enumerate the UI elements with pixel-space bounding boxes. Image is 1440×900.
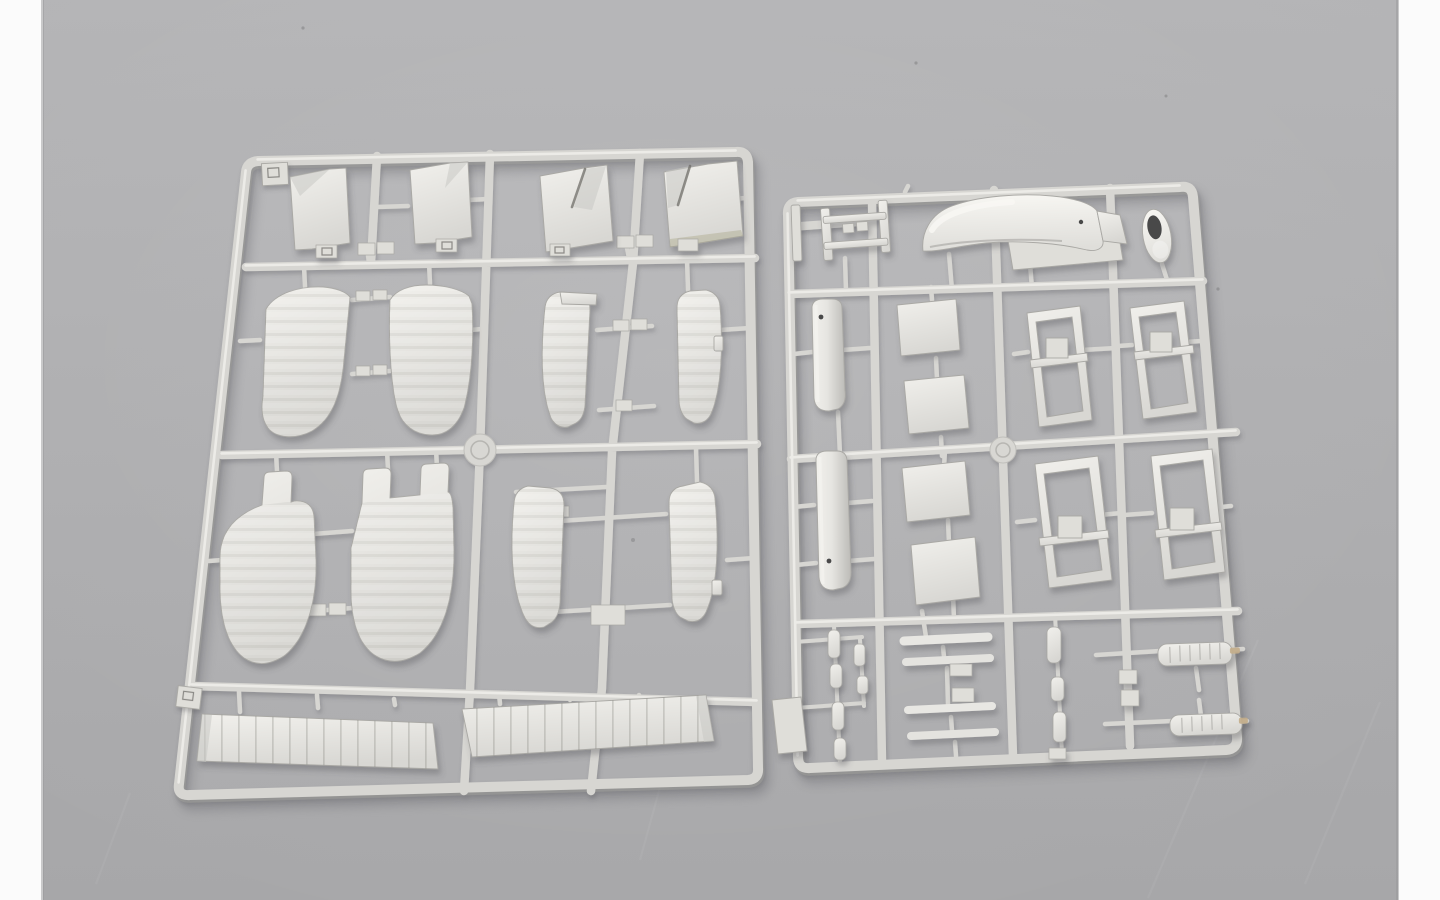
part-lower-wing-slat-1 bbox=[197, 714, 438, 769]
part-fuselage-half-1 bbox=[812, 299, 845, 411]
kit-sprues-photo: Two light-grey injection-moulded plastic… bbox=[0, 0, 1440, 900]
part-deck-panel-1 bbox=[897, 299, 960, 356]
part-notched-panel-1 bbox=[540, 165, 613, 256]
left-sprue bbox=[176, 150, 764, 805]
dust-speck bbox=[914, 61, 917, 64]
part-wing-panel-3 bbox=[512, 486, 564, 628]
part-thin-strip bbox=[791, 205, 802, 261]
right-sprue bbox=[772, 185, 1248, 778]
part-notched-panel-2 bbox=[664, 161, 743, 251]
dust-speck bbox=[1165, 95, 1168, 98]
sprue-photo-svg bbox=[0, 0, 1440, 900]
part-wing-tip-2 bbox=[389, 285, 472, 435]
part-deck-panel-4 bbox=[911, 537, 980, 605]
part-deck-panel-3 bbox=[902, 461, 970, 522]
part-deck-panel-2 bbox=[904, 375, 969, 434]
part-flap-panel-2 bbox=[410, 162, 472, 252]
part-machine-gun-2 bbox=[1170, 713, 1249, 737]
part-blank-plate bbox=[772, 697, 807, 754]
right-edge-strip bbox=[1398, 0, 1440, 900]
left-edge-strip bbox=[0, 0, 43, 900]
dust-speck bbox=[1216, 287, 1219, 290]
left-runner-disc bbox=[464, 434, 496, 466]
part-fuselage-half-2 bbox=[816, 451, 851, 590]
part-flap-panel-1 bbox=[290, 168, 350, 258]
right-runner-disc bbox=[990, 437, 1016, 463]
part-machine-gun-1 bbox=[1158, 641, 1241, 666]
dust-speck bbox=[301, 26, 304, 29]
